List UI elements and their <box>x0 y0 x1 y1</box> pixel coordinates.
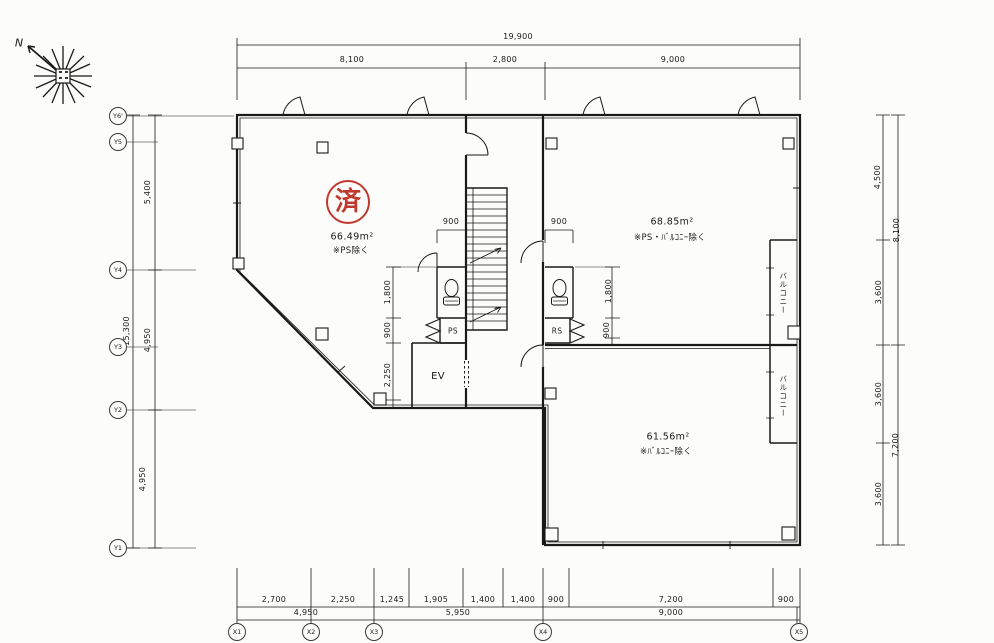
dim-bottom-1: 2,700 <box>262 596 286 604</box>
north-label: N <box>15 37 23 50</box>
grid-bubble-x5: X5 <box>790 623 808 641</box>
dim-core-left-1: 1,800 <box>384 280 392 304</box>
grid-bubble-x1: X1 <box>228 623 246 641</box>
grid-bubble-x4: X4 <box>534 623 552 641</box>
dim-bottom-6: 1,400 <box>511 596 535 604</box>
dim-left-seg-1: 5,400 <box>144 180 152 204</box>
lower-right-room-note: ※ﾊﾞﾙｺﾆｰ除く <box>640 448 692 457</box>
grid-bubble-y1: Y1 <box>109 539 127 557</box>
grid-bubble-y3: Y3 <box>109 338 127 356</box>
dim-right-outer-2: 7,200 <box>892 433 900 457</box>
dim-core-left-2: 900 <box>384 322 392 338</box>
dim-bottom-5: 1,400 <box>471 596 495 604</box>
grid-bubble-y4: Y4 <box>109 261 127 279</box>
pipe-space-left-label: PS <box>448 327 458 335</box>
dim-bottom-7: 900 <box>548 596 564 604</box>
compass-rose-icon <box>28 46 92 104</box>
grid-bubble-x3: X3 <box>365 623 383 641</box>
balcony-lower-label: バルコニー <box>779 375 787 418</box>
dim-bottom-2: 2,250 <box>331 596 355 604</box>
approved-stamp-text: 済 <box>335 189 361 215</box>
dim-top-seg-2: 2,800 <box>493 56 517 64</box>
left-room-note: ※PS除く <box>333 247 369 256</box>
grid-bubble-y2: Y2 <box>109 401 127 419</box>
dim-stair-right: 900 <box>551 218 567 226</box>
dim-right-outer-1: 8,100 <box>893 218 901 242</box>
floor-plan-page: N 19,900 8,100 2,800 9,000 2,700 2,250 1… <box>0 0 994 643</box>
dim-bottom-sum-1: 4,950 <box>294 609 318 617</box>
dim-core-left-3: 2,250 <box>384 363 392 387</box>
dim-top-seg-3: 9,000 <box>661 56 685 64</box>
dim-right-seg-1: 4,500 <box>874 165 882 189</box>
upper-right-room-note: ※PS・ﾊﾞﾙｺﾆｰ除く <box>634 234 706 243</box>
grid-bubble-y5: Y5 <box>109 133 127 151</box>
dim-bottom-sum-3: 9,000 <box>659 609 683 617</box>
floor-plan-drawing <box>0 0 994 643</box>
dim-left-seg-2: 4,950 <box>144 328 152 352</box>
grid-bubble-x2: X2 <box>302 623 320 641</box>
upper-right-room-area: 68.85m² <box>650 217 693 227</box>
dim-bottom-8: 7,200 <box>659 596 683 604</box>
dim-core-right-2: 900 <box>603 322 611 338</box>
dim-top-seg-1: 8,100 <box>340 56 364 64</box>
dim-bottom-3: 1,245 <box>380 596 404 604</box>
left-room-area: 66.49m² <box>330 232 373 242</box>
dim-core-right-1: 1,800 <box>605 279 613 303</box>
dim-top-total: 19,900 <box>503 33 533 41</box>
pipe-space-right-label: RS <box>552 327 563 335</box>
approved-stamp: 済 <box>326 180 370 224</box>
dim-bottom-sum-2: 5,950 <box>446 609 470 617</box>
dim-right-seg-2: 3,600 <box>875 280 883 304</box>
grid-bubble-y6: Y6' <box>109 107 127 125</box>
elevator-label: EV <box>431 372 445 382</box>
lower-right-room-area: 61.56m² <box>646 432 689 442</box>
dim-bottom-9: 900 <box>778 596 794 604</box>
dim-right-seg-4: 3,600 <box>875 482 883 506</box>
dim-right-seg-3: 3,600 <box>875 382 883 406</box>
dim-stair-left: 900 <box>443 218 459 226</box>
dim-bottom-4: 1,905 <box>424 596 448 604</box>
balcony-upper-label: バルコニー <box>779 272 787 315</box>
dim-left-seg-3: 4,950 <box>139 467 147 491</box>
